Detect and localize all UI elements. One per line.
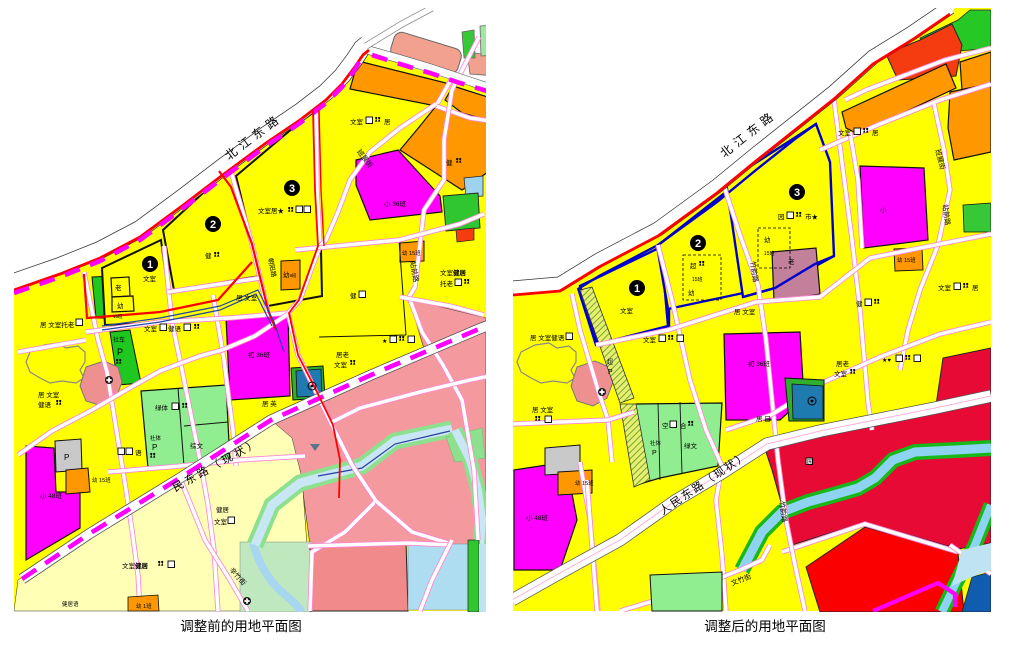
svg-text:社体: 社体	[150, 434, 162, 442]
svg-text:幼 15班: 幼 15班	[92, 476, 111, 484]
svg-text:文室居★: 文室居★	[258, 206, 285, 215]
svg-text:居 文室: 居 文室	[532, 405, 554, 414]
svg-text:2: 2	[210, 219, 216, 231]
svg-text:健: 健	[205, 251, 212, 260]
svg-text:15班: 15班	[692, 276, 703, 283]
svg-text:2: 2	[695, 238, 701, 250]
svg-text:健居语: 健居语	[62, 600, 79, 608]
svg-text:居 日: 居 日	[756, 415, 771, 423]
svg-text:3: 3	[289, 183, 295, 195]
svg-text:★: ★	[382, 338, 387, 345]
svg-text:P: P	[117, 347, 123, 357]
svg-text:健居: 健居	[216, 505, 230, 514]
svg-text:老: 老	[788, 257, 795, 266]
svg-text:幼 1班: 幼 1班	[136, 602, 152, 610]
svg-text:文室: 文室	[643, 335, 657, 344]
svg-text:幼 15班: 幼 15班	[575, 479, 594, 487]
svg-text:托老: 托老	[440, 279, 454, 288]
svg-text:★♥: ★♥	[882, 357, 891, 364]
svg-text:居老: 居老	[836, 359, 850, 368]
svg-text:1: 1	[634, 283, 640, 295]
svg-text:幼: 幼	[688, 288, 695, 297]
svg-text:居 文室: 居 文室	[236, 293, 258, 302]
svg-text:初 36班: 初 36班	[748, 359, 771, 368]
svg-text:超: 超	[607, 358, 613, 366]
svg-text:居: 居	[384, 118, 391, 126]
svg-text:15班: 15班	[113, 313, 123, 320]
svg-text:文室: 文室	[214, 517, 228, 526]
svg-text:文室: 文室	[143, 274, 157, 283]
svg-text:居 文室托老: 居 文室托老	[40, 320, 75, 329]
svg-text:P: P	[64, 453, 69, 462]
svg-text:绿体: 绿体	[155, 403, 169, 412]
svg-text:幼 15班: 幼 15班	[897, 256, 916, 264]
svg-text:居 文室健语: 居 文室健语	[530, 333, 565, 342]
svg-text:小 48班: 小 48班	[40, 491, 63, 500]
svg-text:P: P	[608, 369, 613, 376]
svg-text:初 36班: 初 36班	[248, 350, 271, 359]
svg-text:社体: 社体	[650, 439, 662, 447]
svg-text:园: 园	[807, 459, 813, 466]
svg-text:园: 园	[778, 213, 785, 221]
svg-text:小: 小	[880, 205, 887, 214]
svg-text:健语: 健语	[38, 400, 52, 409]
svg-text:调整前的用地平面图: 调整前的用地平面图	[180, 618, 302, 634]
svg-text:P: P	[652, 450, 657, 457]
svg-text:健语: 健语	[168, 324, 182, 333]
svg-text:15班: 15班	[764, 250, 775, 257]
svg-text:市★: 市★	[805, 212, 819, 221]
svg-text:文室: 文室	[834, 369, 848, 378]
svg-text:文室健居: 文室健居	[122, 561, 149, 570]
svg-text:居 文室: 居 文室	[734, 307, 756, 316]
svg-text:合: 合	[680, 421, 687, 430]
svg-text:空: 空	[662, 421, 669, 430]
svg-text:居: 居	[972, 284, 979, 292]
svg-text:文室: 文室	[144, 324, 158, 333]
svg-text:小 48班: 小 48班	[526, 513, 549, 522]
svg-text:健: 健	[350, 291, 357, 300]
svg-text:小 36班: 小 36班	[384, 199, 407, 208]
svg-text:1: 1	[147, 259, 153, 271]
svg-text:幼: 幼	[117, 301, 124, 310]
svg-text:健: 健	[446, 158, 453, 167]
svg-text:调整后的用地平面图: 调整后的用地平面图	[704, 619, 826, 634]
svg-text:绿文: 绿文	[684, 441, 698, 450]
svg-text:语: 语	[135, 448, 142, 457]
svg-text:文室: 文室	[838, 128, 852, 137]
svg-text:文室健居: 文室健居	[440, 268, 467, 277]
svg-text:居 英: 居 英	[262, 399, 277, 408]
svg-text:老: 老	[115, 283, 122, 292]
svg-text:健: 健	[856, 299, 863, 308]
svg-text:文室: 文室	[620, 306, 634, 315]
svg-text:P: P	[152, 443, 157, 452]
svg-text:3: 3	[794, 187, 800, 199]
svg-text:幼 15班: 幼 15班	[402, 249, 421, 257]
svg-text:居 文室: 居 文室	[38, 390, 60, 399]
svg-text:文室: 文室	[334, 360, 348, 369]
svg-text:超: 超	[690, 261, 697, 270]
svg-text:文室: 文室	[350, 117, 364, 126]
svg-text:居: 居	[872, 129, 879, 137]
svg-text:幼: 幼	[764, 235, 771, 244]
svg-text:文室: 文室	[938, 283, 952, 292]
svg-text:居老: 居老	[336, 350, 350, 359]
svg-text:综文: 综文	[190, 441, 204, 450]
svg-text:社车: 社车	[113, 336, 125, 344]
